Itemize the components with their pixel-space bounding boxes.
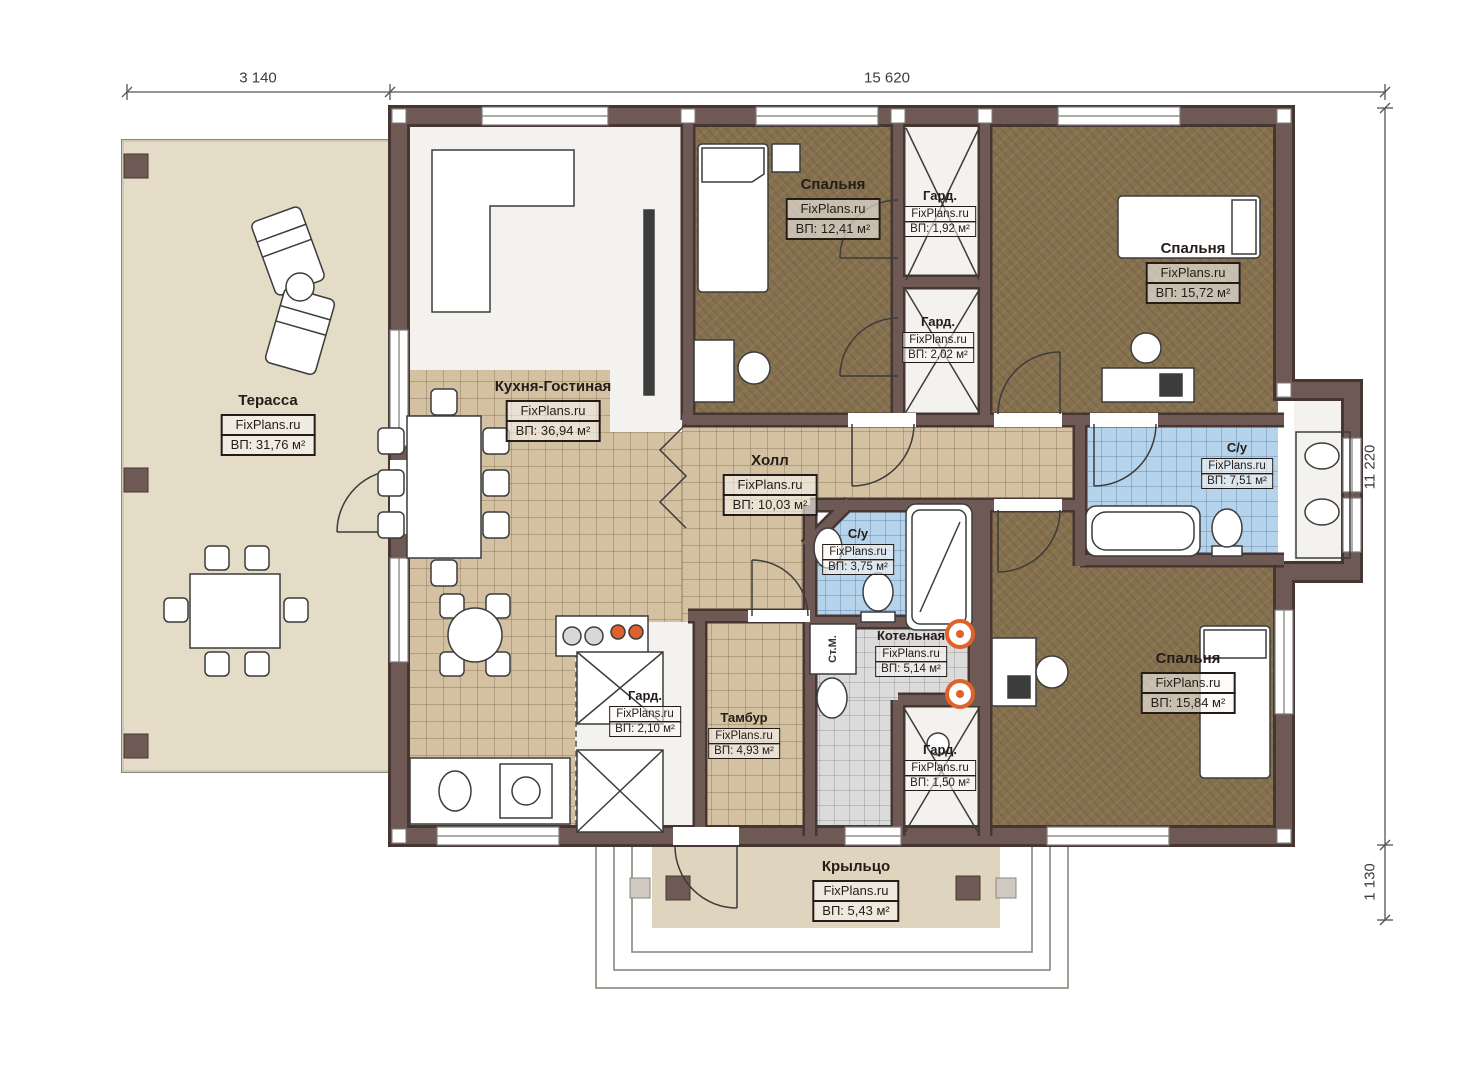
watermark: FixPlans.ru	[708, 728, 780, 744]
dimension-label-top-right: 15 620	[864, 70, 910, 87]
watermark: FixPlans.ru	[723, 474, 818, 496]
oven	[500, 764, 552, 818]
watermark: FixPlans.ru	[875, 646, 947, 662]
area-value: ВП: 15,72 м²	[1146, 282, 1241, 304]
dimension-label-right-upper: 11 220	[1362, 445, 1379, 490]
dimension-label-right-lower: 1 130	[1362, 863, 1379, 901]
watermark: FixPlans.ru	[609, 706, 681, 722]
desk	[694, 340, 734, 402]
shower	[906, 504, 972, 630]
area-value: ВП: 31,76 м²	[221, 434, 316, 456]
watermark: FixPlans.ru	[812, 880, 899, 902]
desk-appliance	[1008, 676, 1030, 698]
area-value: ВП: 3,75 м²	[822, 559, 894, 575]
room-label-wardrobe2: Гард. FixPlans.ruВП: 2,02 м²	[902, 314, 974, 364]
porch-post	[956, 876, 980, 900]
room-label-bedroom2: Спальня FixPlans.ruВП: 15,72 м²	[1146, 240, 1241, 304]
area-value: ВП: 2,10 м²	[609, 721, 681, 737]
porch-pad	[996, 878, 1016, 898]
area-value: ВП: 1,50 м²	[904, 775, 976, 791]
kitchen-sink	[439, 771, 471, 811]
round-table-set	[440, 594, 510, 676]
area-value: ВП: 1,92 м²	[904, 221, 976, 237]
washing-machine-label: Ст.М.	[827, 635, 839, 663]
room-label-terrace: Терасса FixPlans.ruВП: 31,76 м²	[221, 392, 316, 456]
porch-pad	[630, 878, 650, 898]
sofa	[432, 150, 574, 312]
room-label-wardrobe4: Гард. FixPlans.ruВП: 1,50 м²	[904, 742, 976, 792]
desk-appliance	[1160, 374, 1182, 396]
toilet	[1212, 509, 1242, 556]
watermark: FixPlans.ru	[822, 544, 894, 560]
dimension-label-top-left: 3 140	[239, 70, 277, 87]
area-value: ВП: 36,94 м²	[506, 420, 601, 442]
room-label-bedroom3: Спальня FixPlans.ruВП: 15,84 м²	[1141, 650, 1236, 714]
area-value: ВП: 10,03 м²	[723, 494, 818, 516]
watermark: FixPlans.ru	[1141, 672, 1236, 694]
watermark: FixPlans.ru	[786, 198, 881, 220]
room-label-wardrobe1: Гард. FixPlans.ruВП: 1,92 м²	[904, 188, 976, 238]
area-value: ВП: 4,93 м²	[708, 743, 780, 759]
terrace-table-set	[164, 546, 308, 676]
toilet	[861, 573, 895, 622]
area-value: ВП: 12,41 м²	[786, 218, 881, 240]
room-label-boiler: Котельная FixPlans.ruВП: 5,14 м²	[875, 628, 947, 678]
porch-post	[666, 876, 690, 900]
chair	[738, 352, 770, 384]
room-label-bathroom2: С/у FixPlans.ruВП: 3,75 м²	[822, 526, 894, 576]
watermark: FixPlans.ru	[1201, 458, 1273, 474]
room-label-hall: Холл FixPlans.ruВП: 10,03 м²	[723, 452, 818, 516]
floor-plan: 3 140 15 620 11 220 1 130 Терасса FixPla…	[0, 0, 1473, 1080]
area-value: ВП: 2,02 м²	[902, 347, 974, 363]
area-value: ВП: 15,84 м²	[1141, 692, 1236, 714]
chair	[1131, 333, 1161, 363]
room-label-wardrobe3: Гард. FixPlans.ruВП: 2,10 м²	[609, 688, 681, 738]
watermark: FixPlans.ru	[902, 332, 974, 348]
room-label-vestibule: Тамбур FixPlans.ruВП: 4,93 м²	[708, 710, 780, 760]
area-value: ВП: 5,43 м²	[812, 900, 899, 922]
watermark: FixPlans.ru	[506, 400, 601, 422]
room-label-porch: Крыльцо FixPlans.ruВП: 5,43 м²	[812, 858, 899, 922]
tv	[644, 210, 654, 395]
watermark: FixPlans.ru	[221, 414, 316, 436]
nightstand	[772, 144, 800, 172]
chair	[1036, 656, 1068, 688]
bathtub	[1086, 506, 1200, 556]
room-label-bedroom1: Спальня FixPlans.ruВП: 12,41 м²	[786, 176, 881, 240]
watermark: FixPlans.ru	[1146, 262, 1241, 284]
plan-graphics	[0, 0, 1473, 1080]
area-value: ВП: 5,14 м²	[875, 661, 947, 677]
room-label-kitchen-living: Кухня-Гостиная FixPlans.ruВП: 36,94 м²	[495, 378, 612, 442]
bed-pillow	[702, 148, 764, 182]
side-table	[286, 273, 314, 301]
area-value: ВП: 7,51 м²	[1201, 473, 1273, 489]
room-label-bathroom1: С/у FixPlans.ruВП: 7,51 м²	[1201, 440, 1273, 490]
stove	[556, 616, 648, 656]
watermark: FixPlans.ru	[904, 206, 976, 222]
watermark: FixPlans.ru	[904, 760, 976, 776]
sink	[817, 678, 847, 718]
terrace-posts	[124, 154, 148, 758]
